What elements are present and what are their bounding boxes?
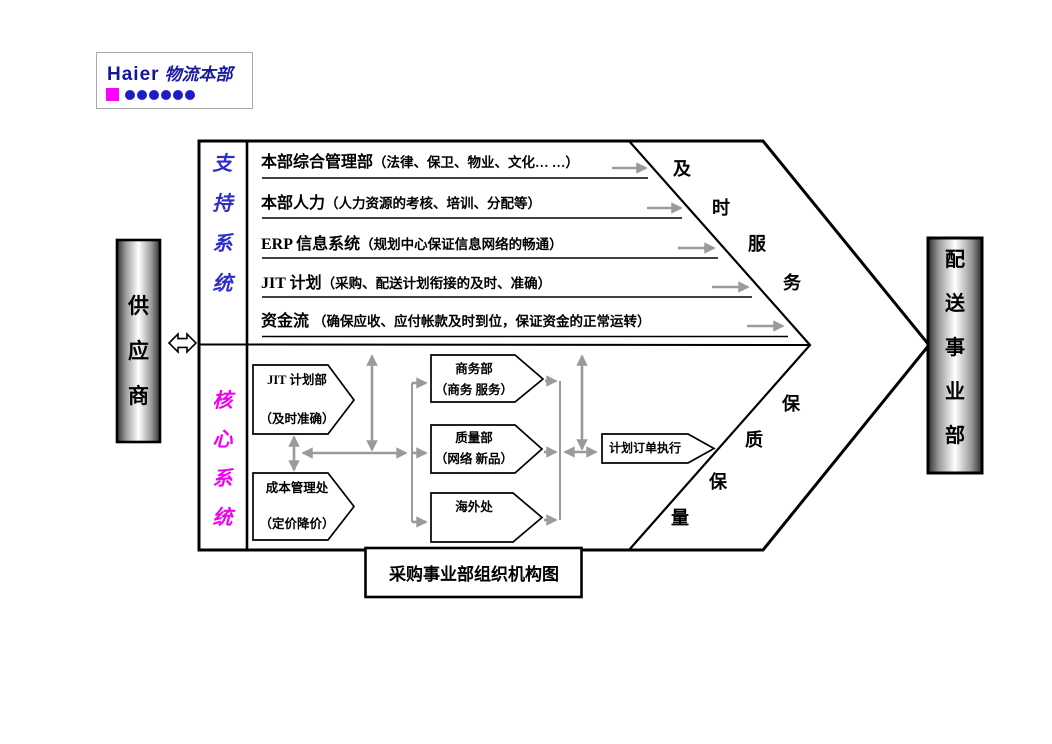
exchange-arrow-icon [169,334,196,352]
node-commerce-line2: （商务 服务） [427,383,521,398]
outcome-char-support: 时 [708,195,734,221]
row-detail: （法律、保卫、物业、文化… …） [373,155,579,170]
support-row-admin: 本部综合管理部（法律、保卫、物业、文化… …） [261,151,579,175]
haier-logo-box: Haier物流本部 [96,52,253,109]
row-detail: （确保应收、应付帐款及时到位，保证资金的正常运转） [313,314,651,329]
magenta-square-icon [106,88,119,101]
node-cost-line2: （定价降价） [251,517,343,532]
node-overseas-line1: 海外处 [427,500,521,515]
node-order-line1: 计划订单执行 [598,441,692,456]
row-head: ERP 信息系统 [261,236,360,253]
core-system-label: 核心系统 [199,391,246,528]
blue-dot-icon [137,90,147,100]
node-cost-line1: 成本管理处 [251,481,343,496]
support-row-hr: 本部人力（人力资源的考核、培训、分配等） [261,192,541,216]
logo-brand-text: Haier [107,64,160,85]
node-quality-line2: （网络 新品） [427,452,521,467]
outcome-char-support: 服 [744,231,770,257]
outcome-char-core: 保 [778,391,804,417]
row-head: JIT 计划 [261,275,322,292]
blue-dot-icon [173,90,183,100]
outcome-char-core: 保 [705,469,731,495]
diagram-title: 采购事业部组织机构图 [366,548,582,597]
row-detail: （采购、配送计划衔接的及时、准确） [322,276,552,291]
node-commerce-line1: 商务部 [427,362,521,377]
outcome-char-support: 务 [779,270,805,296]
row-head: 本部综合管理部 [261,154,373,171]
supplier-label: 供应商 [117,296,160,407]
blue-dot-icon [125,90,135,100]
logo-dots-row [106,88,195,101]
outcome-char-core: 质 [741,427,767,453]
support-row-erp: ERP 信息系统（规划中心保证信息网络的畅通） [261,233,563,257]
support-row-cashflow: 资金流 （确保应收、应付帐款及时到位，保证资金的正常运转） [261,310,651,334]
blue-dot-icon [149,90,159,100]
support-system-label: 支持系统 [199,154,246,294]
logo-division-text: 物流本部 [165,65,233,84]
blue-dot-icon [161,90,171,100]
row-head: 资金流 [261,313,313,330]
logo-title: Haier物流本部 [107,60,233,86]
blue-dot-icon [185,90,195,100]
row-detail: （规划中心保证信息网络的畅通） [360,237,563,252]
row-detail: （人力资源的考核、培训、分配等） [325,196,541,211]
outcome-char-support: 及 [669,156,695,182]
node-quality-line1: 质量部 [427,431,521,446]
node-jit-line2: （及时准确） [251,412,343,427]
outcome-char-core: 量 [667,505,693,531]
node-jit-line1: JIT 计划部 [251,373,343,388]
distribution-label: 配送事业部 [928,250,982,446]
section-divider-line [200,345,810,346]
row-head: 本部人力 [261,195,325,212]
support-row-jit: JIT 计划（采购、配送计划衔接的及时、准确） [261,272,551,296]
org-chart-page: Haier物流本部 供应商 配送事业部 支持系统 核心系统 本部综合管理部（法律… [0,0,1052,744]
